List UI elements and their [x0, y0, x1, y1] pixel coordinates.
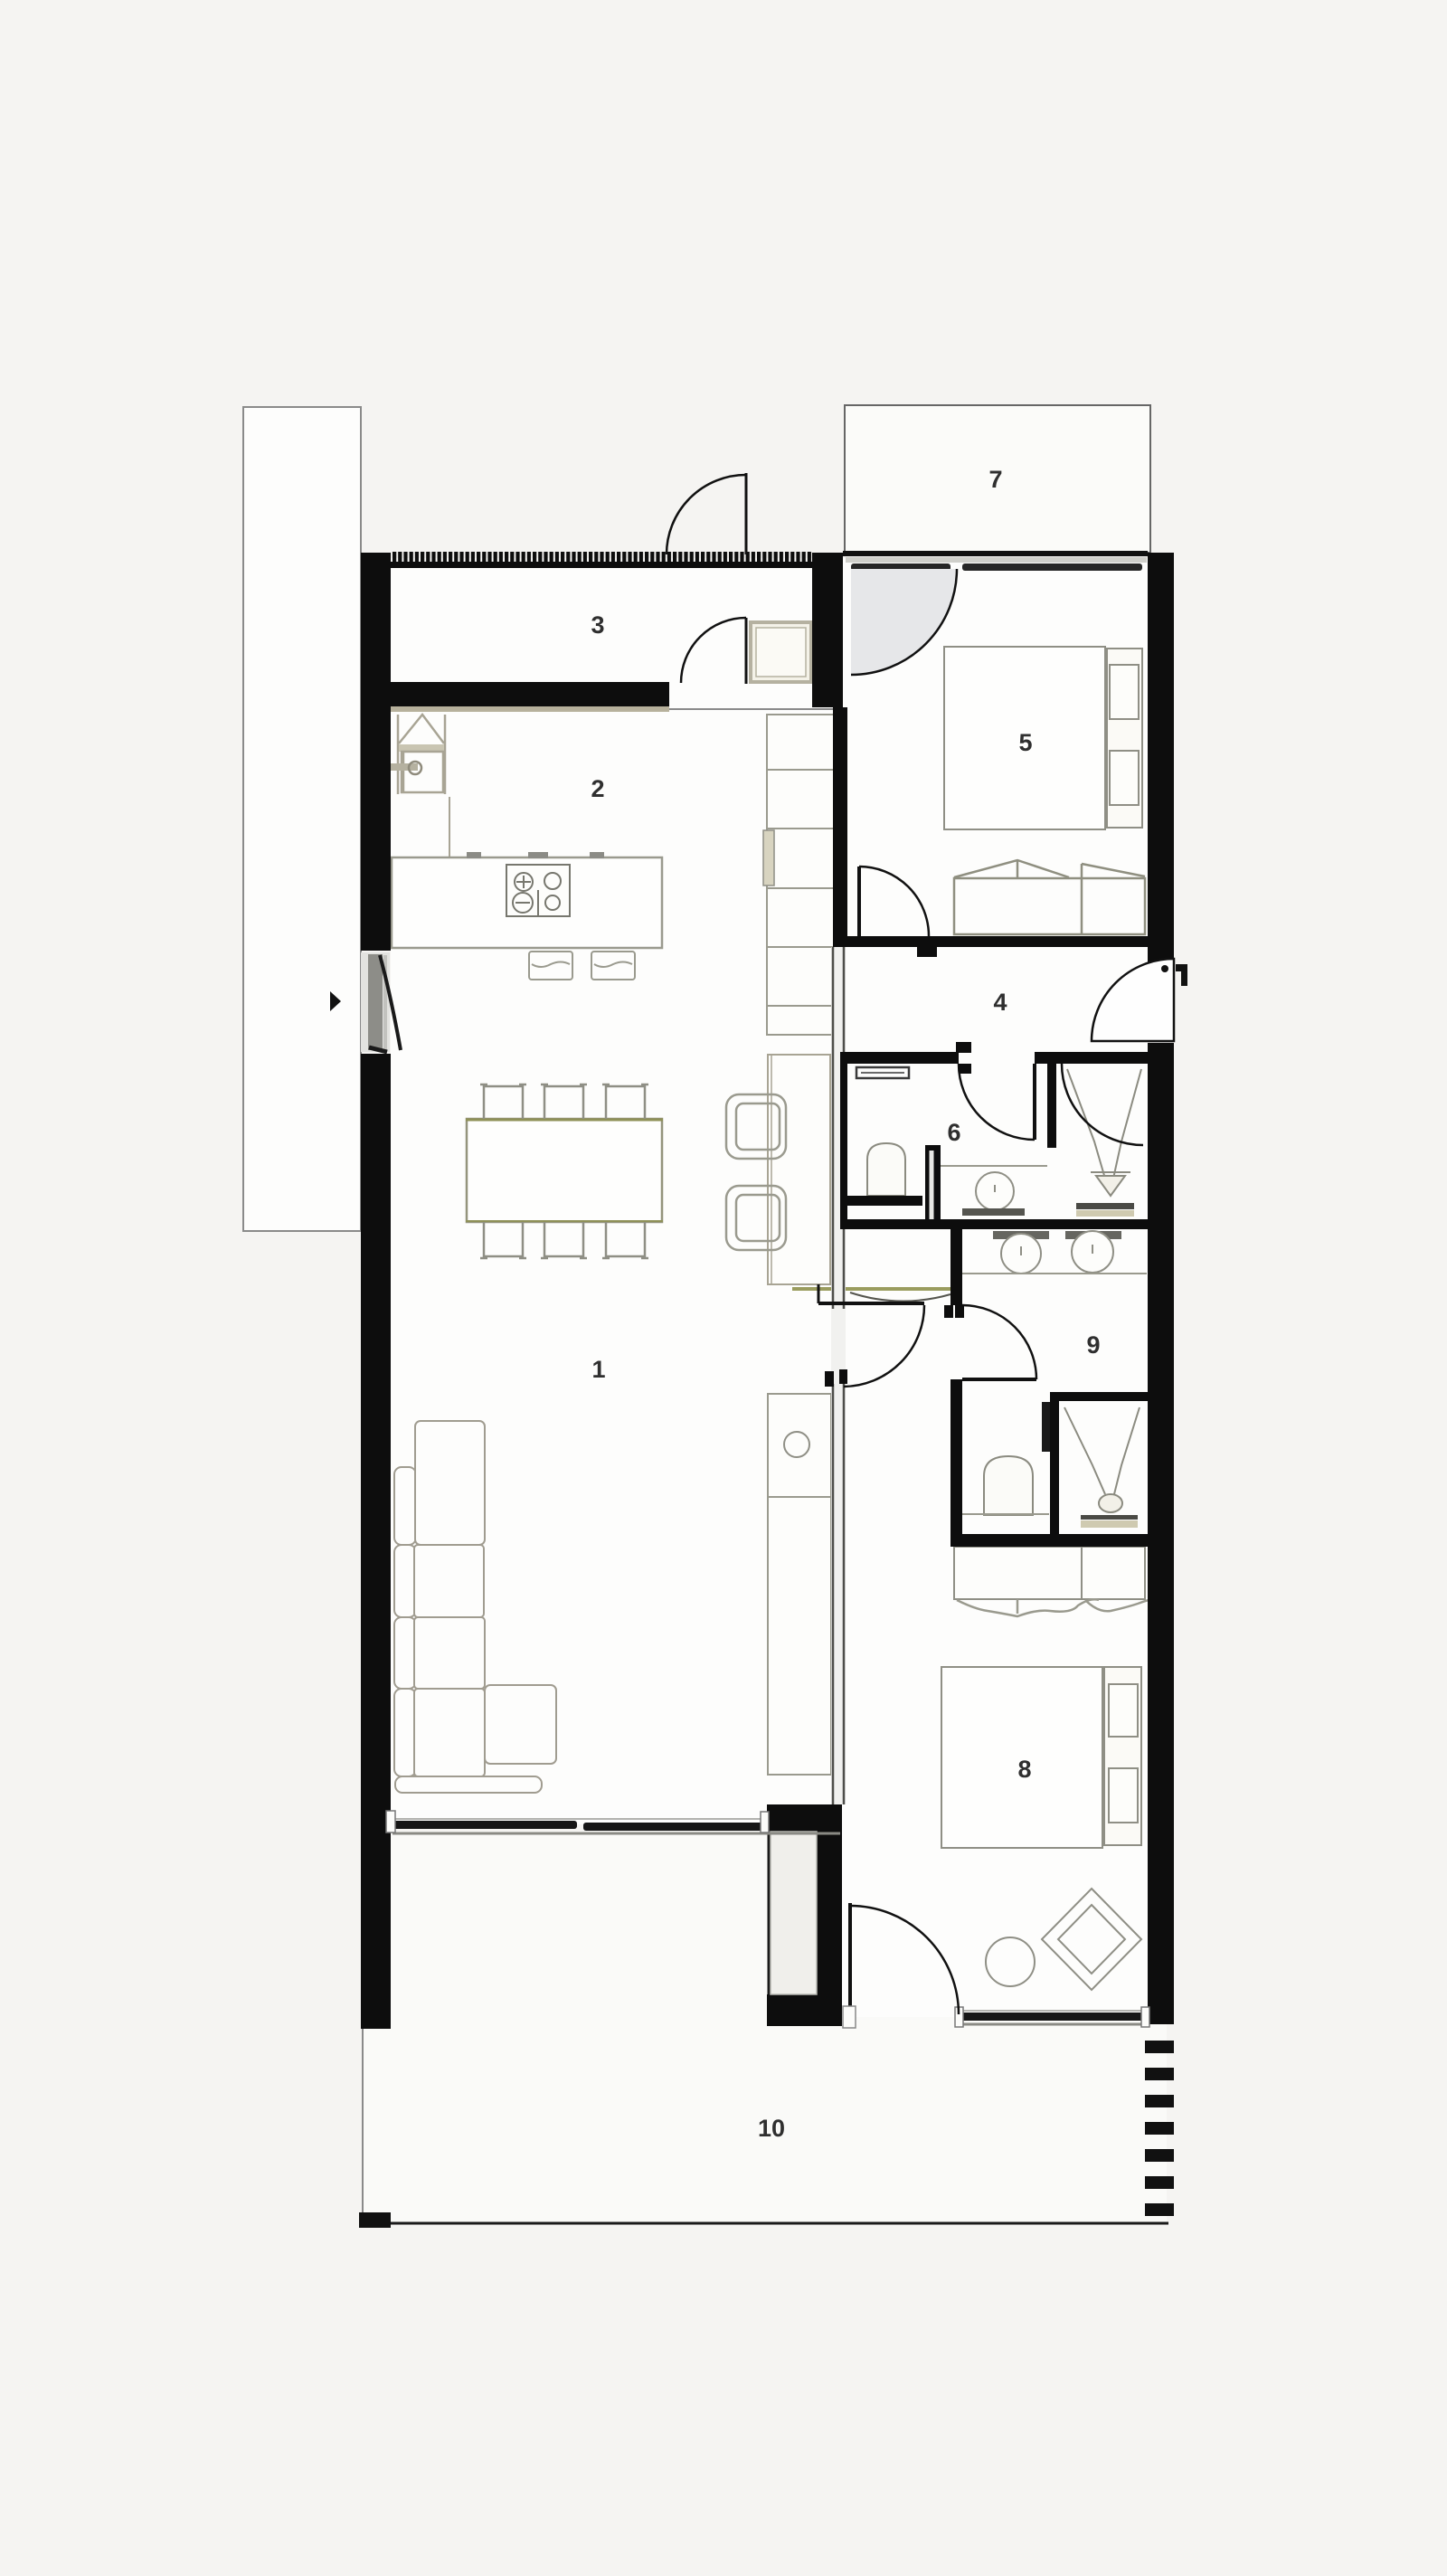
svg-text:3: 3 — [591, 611, 604, 639]
svg-text:1: 1 — [591, 1356, 605, 1383]
svg-text:4: 4 — [993, 989, 1007, 1016]
svg-text:2: 2 — [591, 775, 604, 802]
svg-text:9: 9 — [1086, 1331, 1100, 1359]
svg-text:8: 8 — [1017, 1756, 1031, 1783]
svg-text:5: 5 — [1018, 729, 1032, 756]
svg-text:6: 6 — [947, 1119, 960, 1146]
svg-text:10: 10 — [758, 2115, 785, 2142]
svg-text:7: 7 — [988, 466, 1002, 493]
